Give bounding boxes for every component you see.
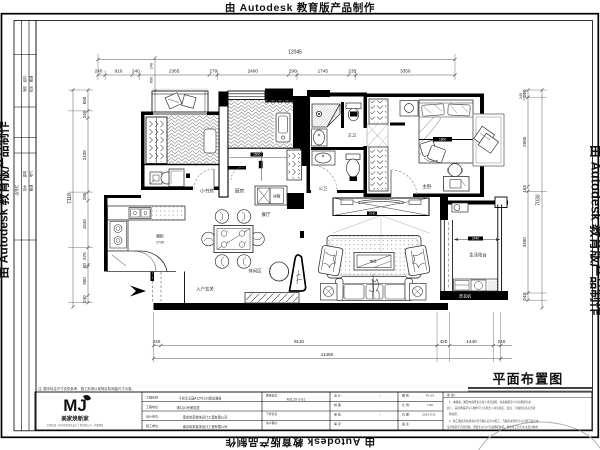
svg-text:入户玄关: 入户玄关 <box>196 286 214 293</box>
svg-text:7030: 7030 <box>536 194 542 205</box>
svg-text:7118: 7118 <box>67 193 73 204</box>
svg-text:1440: 1440 <box>466 339 477 344</box>
svg-text:690: 690 <box>150 77 154 83</box>
svg-text:图 别:: 图 别: <box>402 393 410 398</box>
svg-text:1、本图属、图形内容所表示意义详见说明，未来图纸意义可对图纸: 1、本图属、图形内容所表示意义详见说明，未来图纸意义可对图纸考参 <box>449 400 531 404</box>
svg-text:1500: 1500 <box>253 153 260 157</box>
svg-text:950: 950 <box>82 277 87 285</box>
svg-text:暖通: 暖通 <box>28 184 33 191</box>
svg-text:千禧华五园A12#1103梁总雅居: 千禧华五园A12#1103梁总雅居 <box>179 396 222 401</box>
svg-text:给水: 给水 <box>28 85 33 92</box>
svg-text:会签栏: 会签栏 <box>14 184 19 195</box>
svg-text:2、施工图必须先经客户签字确认后方可施工，凡属因未经签字认可: 2、施工图必须先经客户签字确认后方可施工，凡属因未经签字认可而引发与本 <box>449 419 539 423</box>
svg-text:由 Autodesk 教育版产品制作: 由 Autodesk 教育版产品制作 <box>0 121 11 278</box>
svg-text:9110: 9110 <box>294 339 304 344</box>
svg-text:审 定:: 审 定: <box>334 421 342 426</box>
svg-text:美家焕新家: 美家焕新家 <box>61 415 89 423</box>
svg-text:公卫: 公卫 <box>319 186 327 191</box>
svg-text:3400: 3400 <box>522 237 527 248</box>
svg-text:南京砖家装饰设计工程有限公司: 南京砖家装饰设计工程有限公司 <box>183 424 228 429</box>
svg-text:MJL20-3-S1: MJL20-3-S1 <box>287 398 306 402</box>
svg-text:施工单位:: 施工单位: <box>146 423 159 428</box>
svg-text:比 例:: 比 例: <box>402 402 410 407</box>
svg-text:主卧: 主卧 <box>422 183 432 190</box>
svg-text:2365: 2365 <box>169 69 180 74</box>
svg-text:2985: 2985 <box>522 136 527 147</box>
svg-text:橱柜: 橱柜 <box>156 234 164 239</box>
svg-text:1745: 1745 <box>318 69 329 74</box>
svg-text:由 Autodesk 教育版产品制作: 由 Autodesk 教育版产品制作 <box>225 1 375 14</box>
svg-text:厨房: 厨房 <box>235 188 245 195</box>
svg-text:小书房: 小书房 <box>200 188 215 195</box>
svg-text:消防: 消防 <box>22 85 27 92</box>
svg-text:备 注:: 备 注: <box>402 421 410 426</box>
svg-text:3350: 3350 <box>400 69 411 74</box>
svg-text:240: 240 <box>132 69 140 74</box>
svg-text:电气: 电气 <box>28 170 33 177</box>
svg-text:冰箱: 冰箱 <box>273 194 281 199</box>
svg-text:整处理。: 整处理。 <box>449 412 459 416</box>
svg-text:餐厅: 餐厅 <box>262 211 271 218</box>
svg-text:2014.5.31: 2014.5.31 <box>422 413 436 417</box>
svg-text:285: 285 <box>82 192 87 200</box>
svg-text:1730: 1730 <box>156 241 164 245</box>
svg-text:290: 290 <box>289 69 297 74</box>
svg-text:日 期:: 日 期: <box>402 412 410 417</box>
svg-text:休闲区: 休闲区 <box>248 268 262 275</box>
svg-text:240: 240 <box>82 110 87 118</box>
svg-text:240: 240 <box>95 69 103 74</box>
svg-text:工程地址:: 工程地址: <box>146 404 159 409</box>
svg-text:2440: 2440 <box>472 237 479 241</box>
svg-text:60: 60 <box>82 263 87 269</box>
svg-text:洗衣机: 洗衣机 <box>459 293 471 299</box>
svg-text:阅了。其现场情况与与图中尺寸有所出入时应按实、变白、节围的适: 阅了。其现场情况与与图中尺寸有所出入时应按实、变白、节围的适当灵活调 <box>447 406 536 410</box>
svg-text:1800: 1800 <box>439 137 446 141</box>
svg-text:制 图:: 制 图: <box>334 402 342 407</box>
svg-text:工程名称:: 工程名称: <box>146 395 159 400</box>
svg-text:审 核:: 审 核: <box>334 412 342 417</box>
svg-text:235: 235 <box>348 69 356 74</box>
svg-text:MJ: MJ <box>63 396 87 415</box>
svg-text:结构: 结构 <box>22 75 27 82</box>
svg-text:570: 570 <box>82 252 87 260</box>
svg-text:暖通: 暖通 <box>28 75 33 82</box>
svg-text:1:50: 1:50 <box>427 403 433 407</box>
svg-text:2400: 2400 <box>248 69 259 74</box>
svg-text:浦口(1)号美宅居: 浦口(1)号美宅居 <box>176 405 199 410</box>
svg-text:11450: 11450 <box>321 352 334 357</box>
svg-text:客户确认:: 客户确认: <box>266 421 278 425</box>
svg-text:2540: 2540 <box>369 211 376 215</box>
svg-text:备 注():: 备 注(): <box>447 393 456 397</box>
svg-text:设计单位:: 设计单位: <box>146 414 159 419</box>
svg-text:电视: 电视 <box>370 259 377 264</box>
svg-text:排水: 排水 <box>22 184 27 191</box>
svg-text:下埤负责:: 下埤负责: <box>266 412 278 416</box>
svg-text:1545: 1545 <box>82 219 87 230</box>
svg-text:全国连锁 · 南京砖家装饰设计工程有限公司 · 美家焕新: 全国连锁 · 南京砖家装饰设计工程有限公司 · 美家焕新 <box>47 423 104 427</box>
svg-text:图纸编号:: 图纸编号: <box>266 394 278 398</box>
svg-text:平面布置图: 平面布置图 <box>492 372 563 387</box>
svg-text:由 Autodesk 教育版产品制作: 由 Autodesk 教育版产品制作 <box>589 145 600 315</box>
svg-text:240: 240 <box>150 63 154 69</box>
svg-text:12045: 12045 <box>288 50 302 56</box>
svg-text:690: 690 <box>82 96 87 104</box>
svg-text:240: 240 <box>153 339 161 344</box>
svg-text:420: 420 <box>440 339 448 344</box>
svg-text:建筑: 建筑 <box>22 170 27 177</box>
svg-text:南京砖家装饰设计工程有限公司: 南京砖家装饰设计工程有限公司 <box>183 415 228 420</box>
svg-text:240: 240 <box>82 295 87 303</box>
svg-text:910: 910 <box>115 69 123 74</box>
svg-text:注: 图中标注尺寸仅供参考，施工前请以现场实际测量尺寸为准。: 注: 图中标注尺寸仅供参考，施工前请以现场实际测量尺寸为准。 <box>38 386 135 391</box>
svg-text:240: 240 <box>519 93 523 99</box>
svg-text:设计情况不合的问题，须要业主与公司进场配备核。望各位工长与业: 设计情况不合的问题，须要业主与公司进场配备核。望各位工长与业主及对重视 <box>447 425 538 429</box>
svg-text:240: 240 <box>522 292 527 300</box>
svg-text:PL-03: PL-03 <box>426 394 434 398</box>
svg-text:主卫: 主卫 <box>348 132 356 138</box>
svg-text:由 Autodesk 教育版产品制作: 由 Autodesk 教育版产品制作 <box>225 436 375 449</box>
svg-text:生活阳台: 生活阳台 <box>469 252 487 259</box>
svg-text:设 计:: 设 计: <box>334 393 342 398</box>
svg-text:2438: 2438 <box>82 150 87 161</box>
svg-text:240: 240 <box>498 339 506 344</box>
svg-text:270: 270 <box>209 69 217 74</box>
